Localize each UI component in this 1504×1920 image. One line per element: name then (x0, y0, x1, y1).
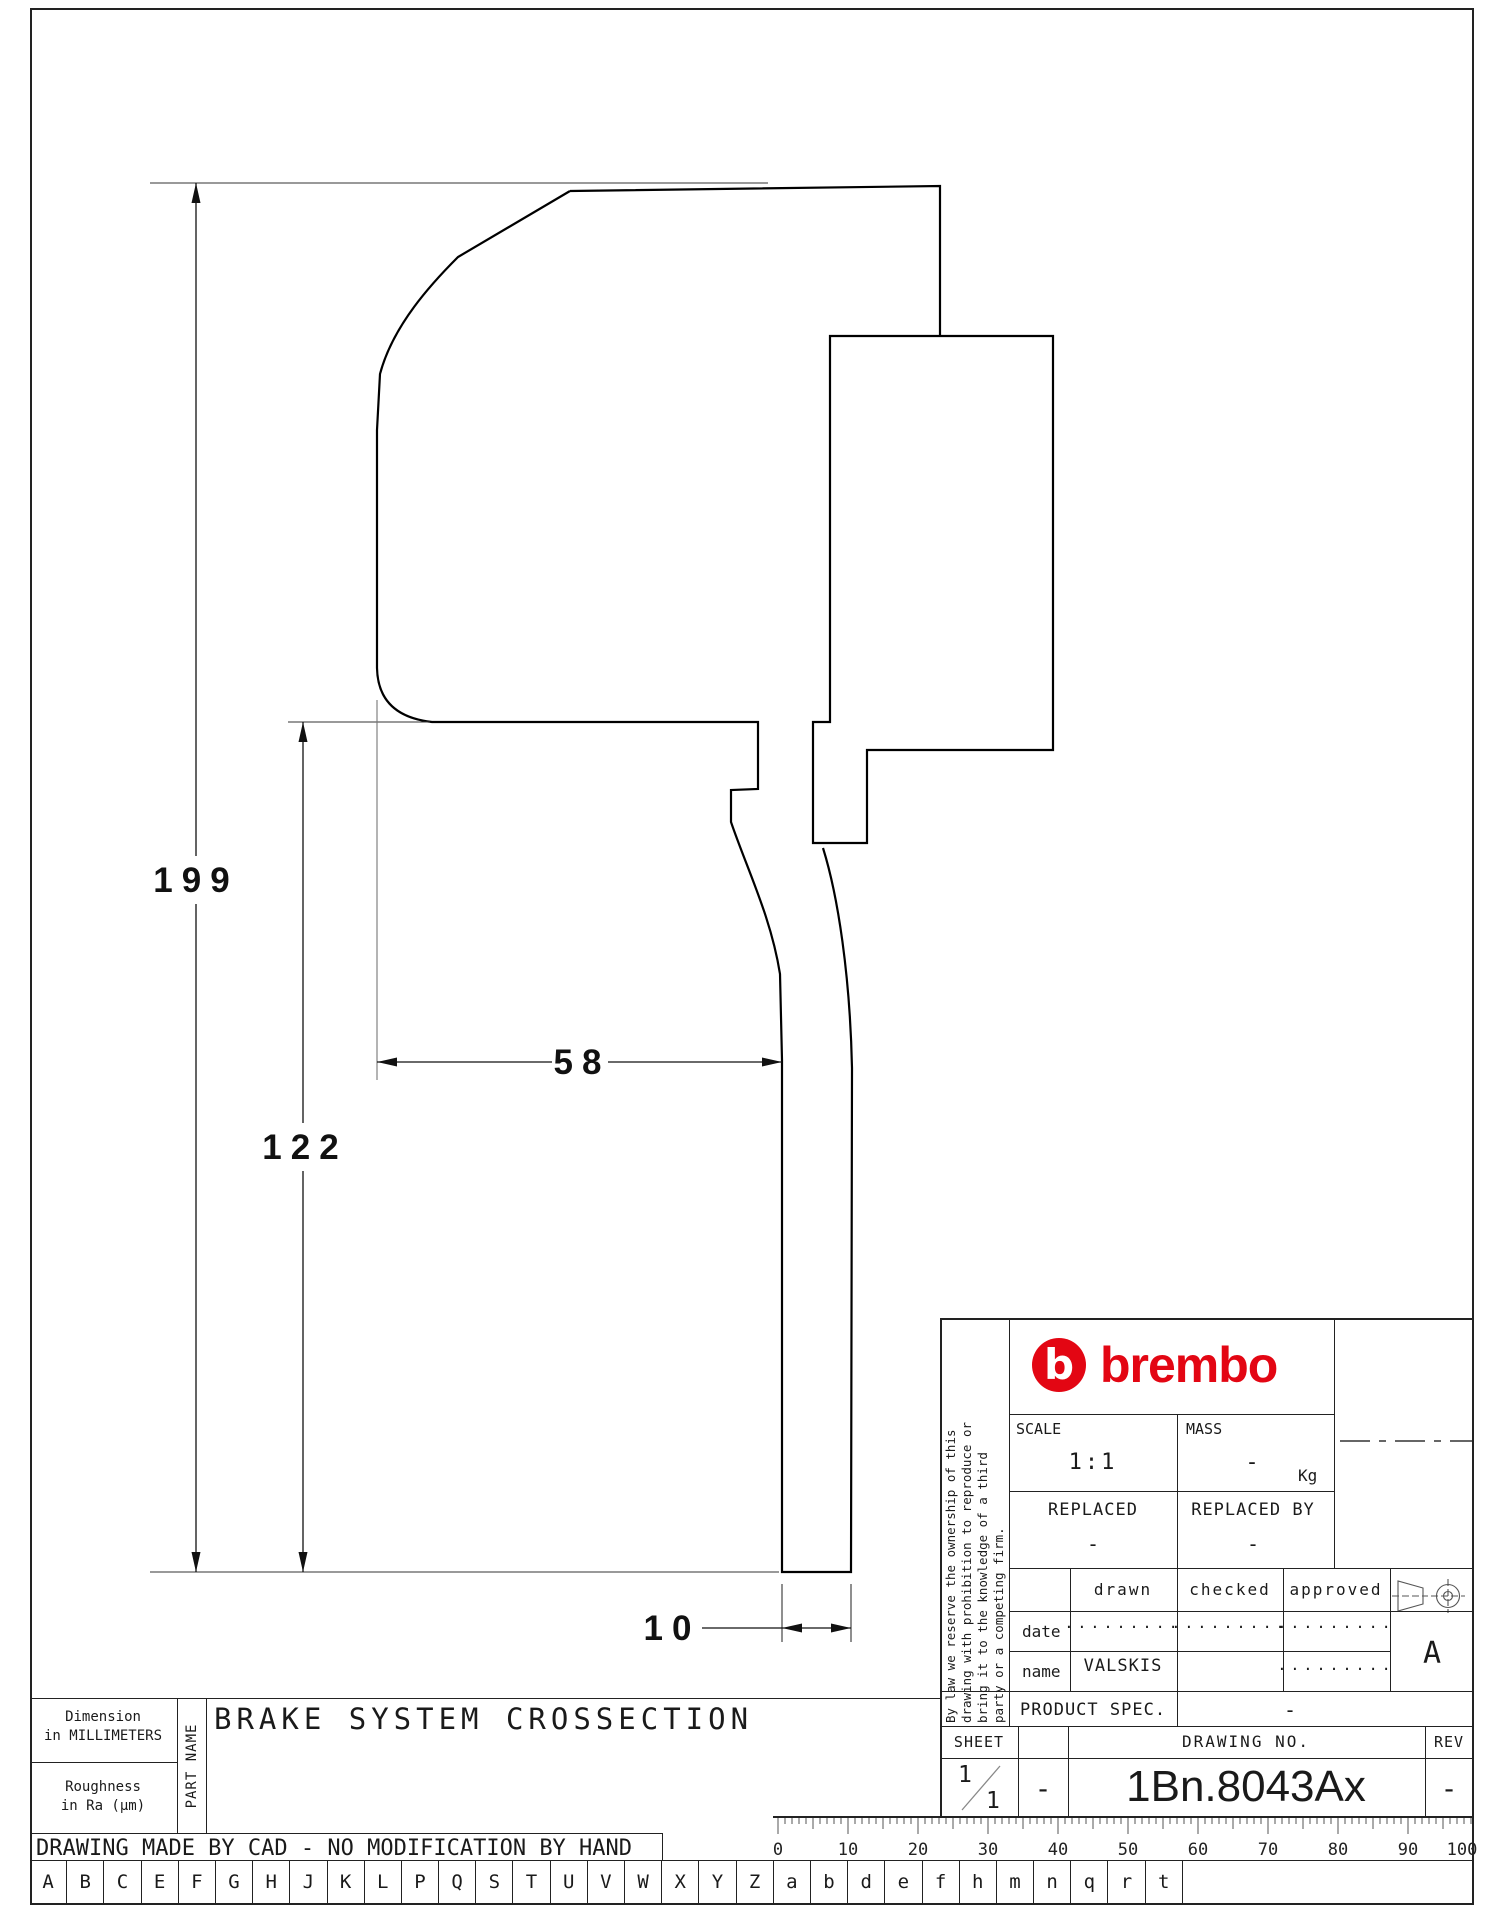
border-line (662, 1833, 663, 1860)
row-label-name: name (1022, 1662, 1061, 1681)
letter-index-cell: L (365, 1861, 402, 1904)
drawing-number: 1Bn.8043Ax (1126, 1762, 1366, 1812)
letter-index-cell: B (67, 1861, 104, 1904)
border-line (1009, 1414, 1334, 1415)
col-header-approved: approved (1289, 1580, 1382, 1599)
rev-label: REV (1434, 1733, 1464, 1751)
letter-index-cell: C (104, 1861, 141, 1904)
letter-index-row: ABCEFGHJKLPQSTUVWXYZabdefhmnqrt (30, 1860, 1472, 1904)
letter-index-cell: n (1034, 1861, 1071, 1904)
letter-index-cell: A (30, 1861, 67, 1904)
border-line (1009, 1611, 1474, 1612)
brembo-wordmark: brembo (1100, 1336, 1277, 1394)
dim-label-58: 58 (554, 1043, 611, 1082)
cad-note: DRAWING MADE BY CAD - NO MODIFICATION BY… (36, 1836, 632, 1861)
border-line (1472, 8, 1474, 1905)
letter-index-cell: X (662, 1861, 699, 1904)
letter-index-cell: J (290, 1861, 327, 1904)
arrow-122-up (299, 722, 308, 742)
dim-label-199: 199 (153, 861, 238, 900)
letter-index-cell: G (216, 1861, 253, 1904)
letter-index-cell: e (885, 1861, 922, 1904)
letter-index-filler (1183, 1861, 1472, 1904)
border-line (1009, 1568, 1474, 1569)
arrow-122-down (299, 1552, 308, 1572)
replaced-label: REPLACED (1048, 1500, 1138, 1520)
part-name-label: PART NAME (184, 1723, 200, 1808)
letter-index-cell: T (513, 1861, 550, 1904)
ruler-number: 0 (773, 1840, 783, 1860)
border-line (1177, 1691, 1178, 1726)
letter-index-cell: E (142, 1861, 179, 1904)
drawing-no-label: DRAWING NO. (1182, 1732, 1310, 1751)
letter-index-cell: W (625, 1861, 662, 1904)
product-spec-label: PRODUCT SPEC. (1020, 1700, 1166, 1720)
border-line (30, 1833, 662, 1834)
scale-ruler (778, 1817, 1471, 1834)
replaced-by-value: - (1247, 1532, 1259, 1556)
letter-index-cell: r (1108, 1861, 1145, 1904)
sheet-label: SHEET (954, 1733, 1004, 1751)
brembo-logo-icon: b (1028, 1332, 1092, 1398)
scale-label: SCALE (1016, 1420, 1061, 1438)
border-line (1009, 1651, 1390, 1652)
replaced-by-label: REPLACED BY (1191, 1500, 1315, 1520)
letter-index-cell: b (811, 1861, 848, 1904)
border-line (1425, 1726, 1426, 1816)
border-line (1334, 1318, 1335, 1568)
ruler-number: 60 (1188, 1840, 1208, 1860)
scale-value: 1:1 (1069, 1450, 1118, 1475)
arrow-199-down (192, 1552, 201, 1572)
name-drawn-value: VALSKIS (1084, 1656, 1163, 1676)
letter-index-cell: a (774, 1861, 811, 1904)
ruler-number: 80 (1328, 1840, 1348, 1860)
letter-index-cell: V (588, 1861, 625, 1904)
col-header-checked: checked (1189, 1580, 1270, 1599)
letter-index-cell: K (328, 1861, 365, 1904)
letter-index-cell: Z (737, 1861, 774, 1904)
ruler-number: 30 (978, 1840, 998, 1860)
arrow-10-left (782, 1624, 802, 1633)
letter-index-cell: h (960, 1861, 997, 1904)
ruler-number: 10 (838, 1840, 858, 1860)
border-line (30, 8, 1474, 10)
col-header-drawn: drawn (1094, 1580, 1152, 1599)
scale-ruler-numbers: 0102030405060708090100 (773, 1840, 1477, 1860)
border-line (30, 1698, 940, 1699)
sheet-num: 1 (958, 1762, 972, 1788)
border-line (1018, 1726, 1019, 1816)
ruler-number: 50 (1118, 1840, 1138, 1860)
letter-index-cell: H (253, 1861, 290, 1904)
border-line (940, 1691, 1474, 1692)
replaced-value: - (1087, 1532, 1099, 1556)
mass-label: MASS (1186, 1420, 1222, 1438)
part-name-cell: PART NAME (176, 1698, 207, 1833)
border-line (773, 1816, 1474, 1818)
dim-label-122: 122 (262, 1128, 347, 1167)
border-line (1009, 1318, 1010, 1726)
letter-index-cell: m (997, 1861, 1034, 1904)
border-line (1068, 1726, 1069, 1816)
letter-index-cell: f (923, 1861, 960, 1904)
revision-letter: A (1423, 1636, 1441, 1671)
dimension-note: Dimension in MILLIMETERS (44, 1708, 162, 1746)
row-label-date: date (1022, 1622, 1061, 1641)
letter-index-cell: q (1071, 1861, 1108, 1904)
ruler-number: 40 (1048, 1840, 1068, 1860)
border-line (940, 1318, 1474, 1320)
arrow-199-up (192, 183, 201, 203)
part-title: BRAKE SYSTEM CROSSECTION (214, 1702, 753, 1736)
drawing-canvas: 199 122 58 10 0102030405060708090100 (0, 0, 1504, 1920)
part-outline-body (377, 186, 940, 1572)
arrow-58-right (762, 1058, 782, 1067)
letter-index-cell: Q (439, 1861, 476, 1904)
date-approved-dots: ......... (1277, 1614, 1394, 1632)
date-checked-dots: ......... (1171, 1614, 1288, 1632)
border-line (940, 1758, 1474, 1759)
arrow-10-right (831, 1624, 851, 1633)
letter-index-cell: U (551, 1861, 588, 1904)
letter-index-cell: t (1146, 1861, 1183, 1904)
letter-index-cell: Y (699, 1861, 736, 1904)
ruler-number: 90 (1398, 1840, 1418, 1860)
ruler-number: 20 (908, 1840, 928, 1860)
mass-value: - (1245, 1450, 1258, 1475)
disclaimer-text: By law we reserve the ownership of this … (943, 1321, 1007, 1723)
border-line (30, 8, 32, 1905)
sheet-total: 1 (986, 1788, 1000, 1814)
border-line (1177, 1414, 1178, 1568)
name-approved-dots: ......... (1277, 1656, 1394, 1674)
border-line (940, 1726, 1474, 1727)
projection-symbol-icon (1392, 1579, 1465, 1613)
product-spec-value: - (1284, 1698, 1296, 1722)
svg-text:b: b (1044, 1340, 1074, 1389)
letter-index-cell: F (179, 1861, 216, 1904)
ruler-number: 70 (1258, 1840, 1278, 1860)
arrow-58-left (377, 1058, 397, 1067)
drawing-sheet: 199 122 58 10 0102030405060708090100 b b… (0, 0, 1504, 1920)
border-line (30, 1762, 177, 1763)
letter-index-cell: P (402, 1861, 439, 1904)
dim-label-10: 10 (644, 1609, 701, 1648)
roughness-note: Roughness in Ra (µm) (61, 1778, 145, 1816)
date-drawn-dots: ......... (1064, 1614, 1181, 1632)
letter-index-cell: S (476, 1861, 513, 1904)
disclaimer-strip: By law we reserve the ownership of this … (940, 1318, 1009, 1726)
rev-value: - (1441, 1772, 1458, 1805)
letter-index-cell: d (848, 1861, 885, 1904)
border-line (1009, 1491, 1334, 1492)
part-outline-right-block (813, 336, 1053, 843)
sheet-dash: - (1035, 1772, 1052, 1805)
mass-unit: Kg (1298, 1466, 1317, 1485)
